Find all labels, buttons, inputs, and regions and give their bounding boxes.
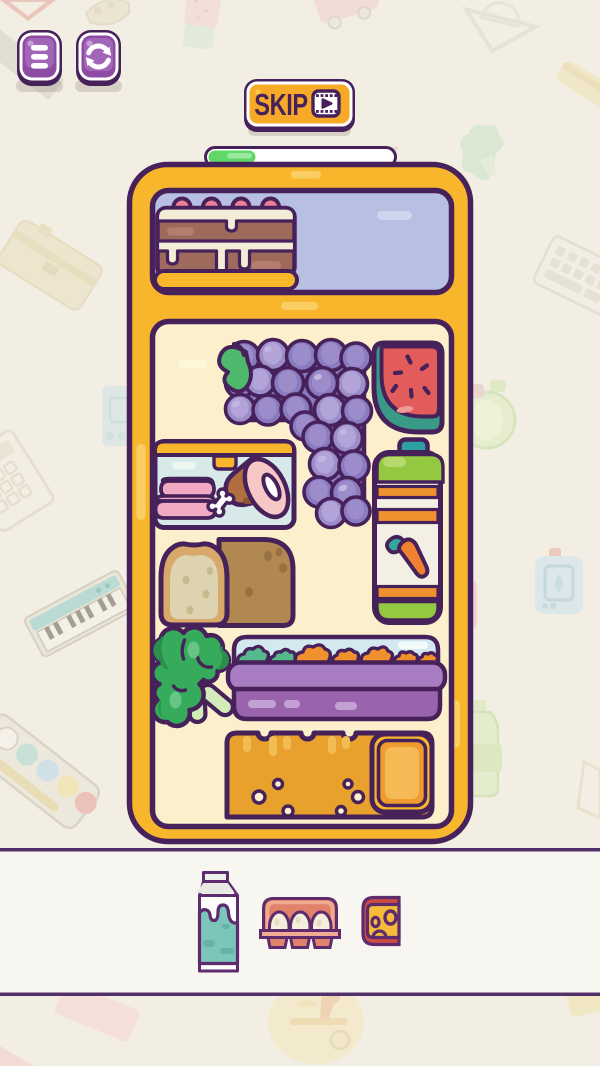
svg-text:SKIP: SKIP <box>254 87 308 122</box>
